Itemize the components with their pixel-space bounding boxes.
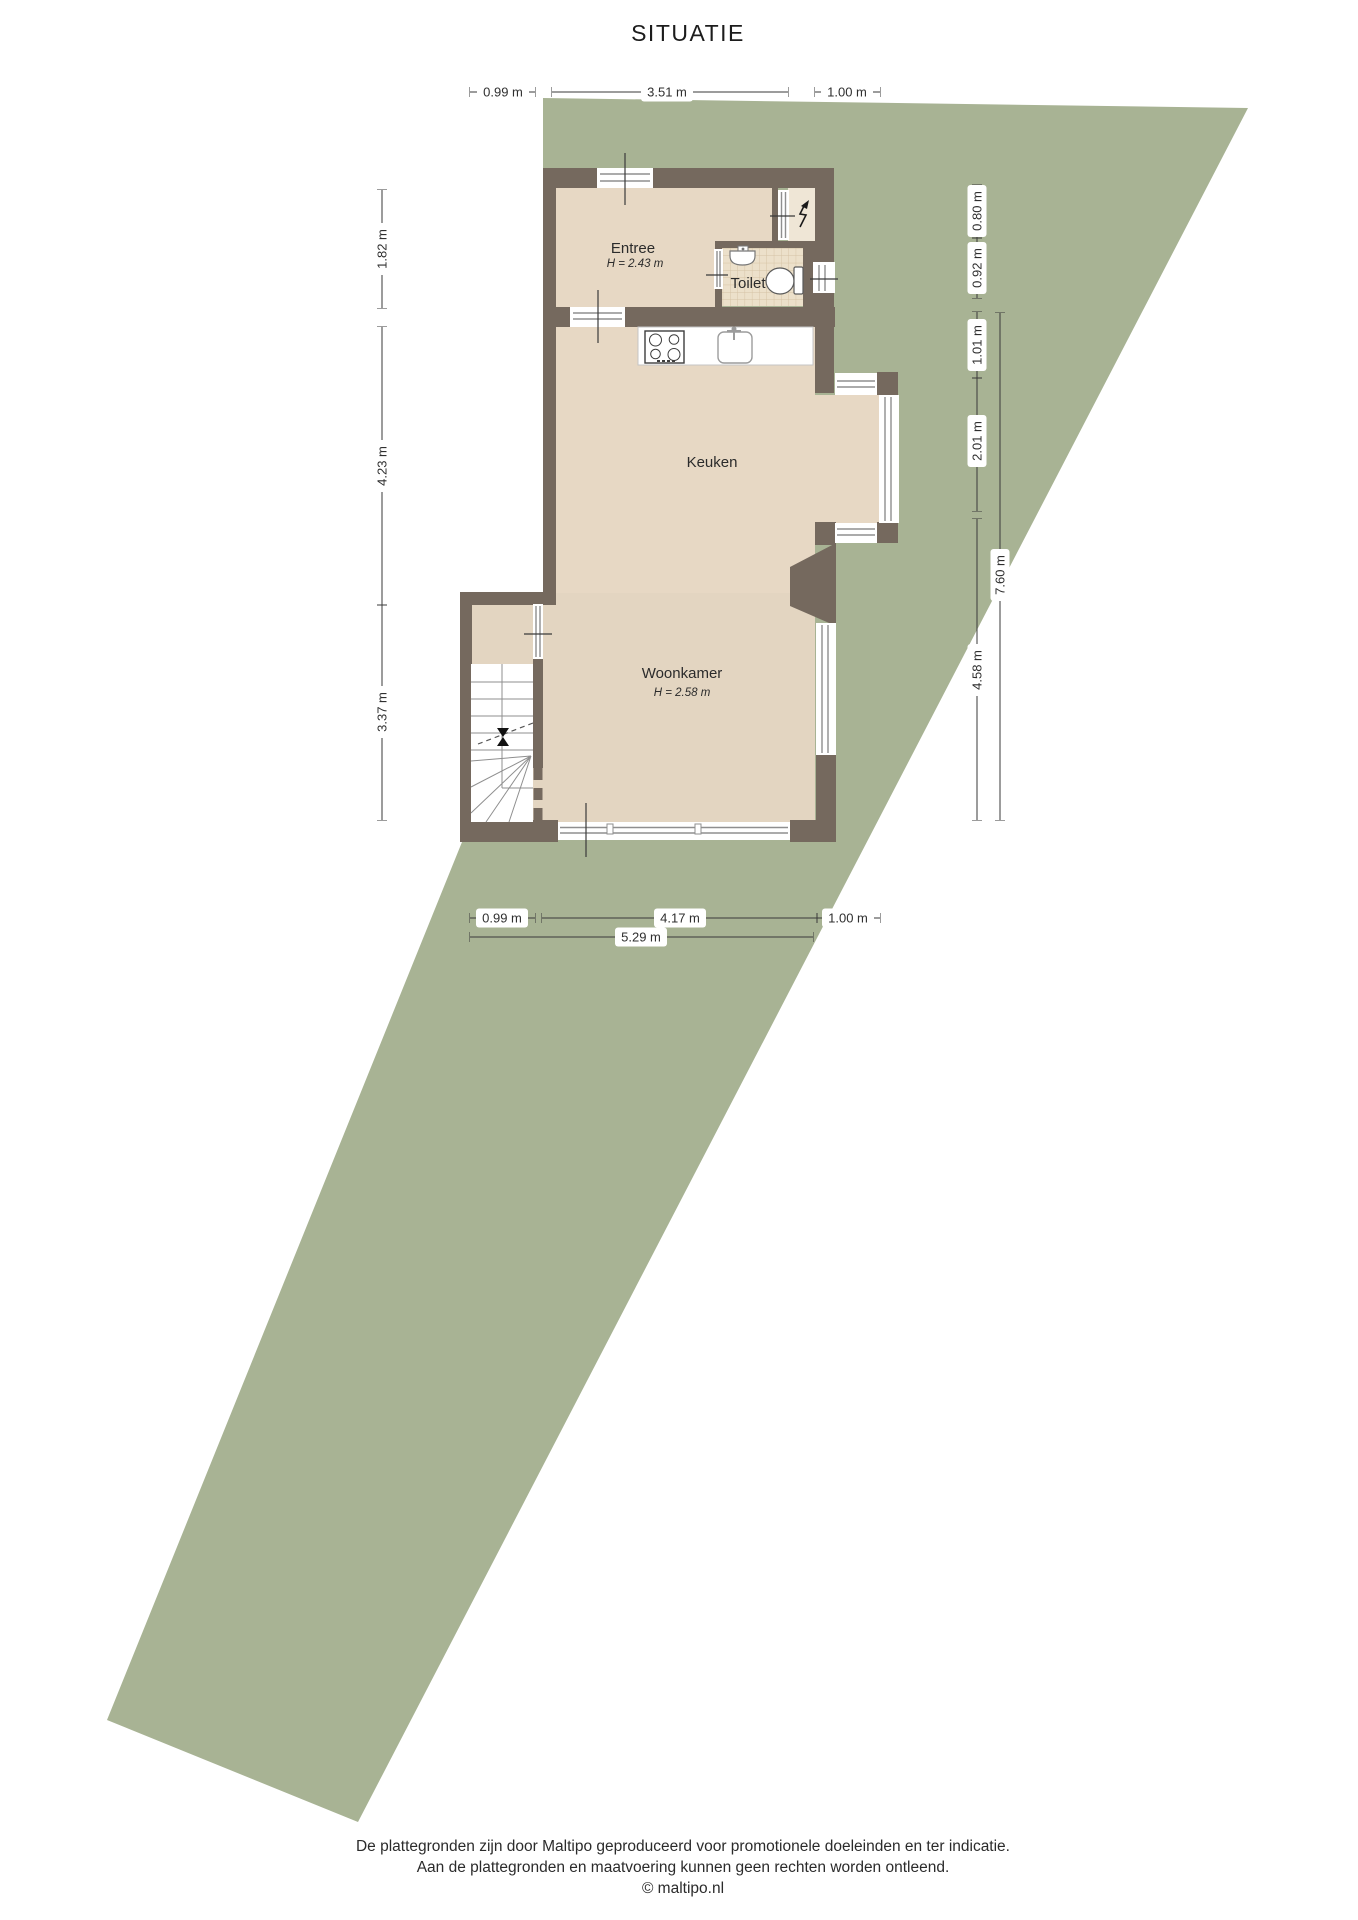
woonkamer-right-window — [816, 623, 836, 755]
dim-bottom-3: 1.00 m — [828, 911, 868, 926]
keuken-floor — [556, 327, 815, 593]
wall-stairext-top — [460, 592, 556, 605]
wall-bay-corner-tr — [877, 372, 898, 395]
entree-height-label: H = 2.43 m — [607, 258, 664, 270]
staircase — [471, 664, 533, 822]
wall-bottom-left — [460, 820, 558, 842]
dim-top-1: 0.99 m — [483, 85, 523, 100]
disclaimer-line-1: De plattegronden zijn door Maltipo gepro… — [0, 1836, 1358, 1857]
wall-left-upper — [543, 168, 556, 327]
toilet-door — [714, 249, 723, 289]
wall-meterkast-door-side — [772, 187, 778, 242]
disclaimer-footer: De plattegronden zijn door Maltipo gepro… — [0, 1836, 1358, 1899]
bay-window-top — [835, 373, 877, 395]
meterkast-door — [778, 190, 789, 240]
keuken-bay-floor — [815, 395, 880, 523]
woonkamer-bottom-window — [558, 822, 790, 840]
dim-right-201: 2.01 m — [970, 421, 985, 461]
wall-right-lower — [816, 755, 836, 822]
dim-right-080: 0.80 m — [970, 191, 985, 231]
dim-left-1: 1.82 m — [375, 229, 390, 269]
dim-right-458: 4.58 m — [970, 650, 985, 690]
kitchen-counter — [638, 327, 813, 366]
toilet-bowl-icon — [766, 267, 803, 294]
dim-top-3: 1.00 m — [827, 85, 867, 100]
woonkamer-height-label: H = 2.58 m — [654, 687, 711, 699]
wall-keuken-left — [543, 327, 556, 593]
wall-toilet-top — [715, 241, 815, 248]
dimensions-left: 1.82 m 4.23 m 3.37 m — [373, 190, 392, 820]
dim-top-2: 3.51 m — [647, 85, 687, 100]
wall-left-lower — [460, 592, 472, 842]
toilet-window — [813, 262, 835, 293]
dim-left-3: 3.37 m — [375, 692, 390, 732]
kitchen-sink-icon — [718, 327, 752, 364]
wall-bay-corner-bl — [815, 522, 836, 545]
stove-icon — [645, 331, 684, 363]
keuken-label: Keuken — [687, 454, 738, 471]
dim-left-2: 4.23 m — [375, 446, 390, 486]
toilet-label: Toilet — [730, 275, 766, 292]
disclaimer-line-2: Aan de plattegronden en maatvoering kunn… — [0, 1857, 1358, 1878]
stair-room-door — [533, 604, 543, 659]
wall-bottom-right — [790, 820, 836, 842]
floorplan-drawing: Entree H = 2.43 m Toilet Keuken Woonkame… — [0, 0, 1358, 1920]
bay-window-bottom — [835, 523, 877, 543]
dim-right-101: 1.01 m — [970, 325, 985, 365]
dim-right-760: 7.60 m — [993, 555, 1008, 595]
entree-label: Entree — [611, 240, 655, 257]
wall-top — [543, 168, 834, 188]
woonkamer-label: Woonkamer — [642, 665, 723, 682]
dimensions-top: 0.99 m 3.51 m 1.00 m — [470, 83, 880, 102]
dim-bottom-1: 0.99 m — [482, 911, 522, 926]
bay-window-right — [879, 395, 899, 523]
dim-bottom-2: 4.17 m — [660, 911, 700, 926]
dim-right-092: 0.92 m — [970, 248, 985, 288]
wall-bay-corner-br — [877, 522, 898, 543]
dim-bottom-total: 5.29 m — [621, 930, 661, 945]
copyright-line: © maltipo.nl — [0, 1878, 1358, 1899]
situatie-floorplan-page: SITUATIE — [0, 0, 1358, 1920]
wall-stair-right — [533, 658, 543, 768]
